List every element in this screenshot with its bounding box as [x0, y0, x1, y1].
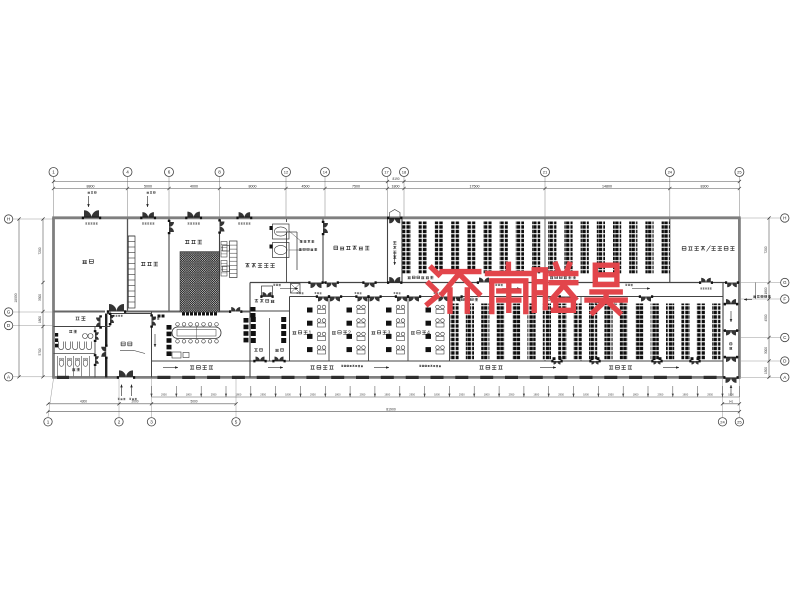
svg-text:17: 17	[384, 170, 389, 175]
svg-text:2: 2	[118, 419, 121, 424]
svg-text:1800: 1800	[384, 393, 390, 397]
svg-text:1800: 1800	[38, 316, 42, 323]
svg-text:24: 24	[720, 419, 725, 424]
svg-text:12: 12	[284, 170, 289, 175]
svg-text:3300: 3300	[38, 294, 42, 301]
svg-text:1800: 1800	[186, 393, 192, 397]
svg-text:21: 21	[543, 170, 548, 175]
svg-text:H: H	[783, 216, 786, 221]
svg-text:14: 14	[323, 170, 328, 175]
svg-text:2950: 2950	[658, 393, 664, 397]
svg-text:6: 6	[168, 170, 171, 175]
svg-text:1800: 1800	[434, 393, 440, 397]
svg-text:25: 25	[737, 419, 742, 424]
svg-text:1: 1	[52, 170, 55, 175]
svg-text:24: 24	[668, 170, 673, 175]
svg-text:4300: 4300	[80, 400, 87, 404]
svg-text:8800: 8800	[87, 184, 95, 188]
svg-text:7200: 7200	[764, 246, 768, 253]
svg-text:2950: 2950	[310, 393, 316, 397]
svg-text:7200: 7200	[38, 247, 42, 254]
svg-text:81900: 81900	[386, 407, 396, 411]
svg-text:2950: 2950	[509, 393, 515, 397]
svg-text:2950: 2950	[360, 393, 366, 397]
svg-text:1800: 1800	[484, 393, 490, 397]
svg-text:5: 5	[235, 419, 238, 424]
svg-text:1: 1	[47, 419, 50, 424]
svg-text:1800: 1800	[335, 393, 341, 397]
svg-text:H: H	[7, 217, 10, 222]
svg-text:2950: 2950	[608, 393, 614, 397]
svg-text:3000: 3000	[764, 347, 768, 354]
svg-text:14800: 14800	[602, 184, 612, 188]
svg-text:25: 25	[737, 170, 742, 175]
svg-text:G: G	[783, 280, 787, 285]
svg-text:942: 942	[729, 400, 734, 404]
svg-text:8190: 8190	[392, 177, 399, 181]
svg-text:18: 18	[402, 170, 407, 175]
svg-text:8000: 8000	[249, 184, 257, 188]
svg-text:3: 3	[388, 331, 391, 337]
svg-text:5700: 5700	[38, 348, 42, 355]
svg-text:2950: 2950	[459, 393, 465, 397]
svg-text:2950: 2950	[260, 393, 266, 397]
svg-text:8: 8	[218, 170, 221, 175]
svg-text:2000: 2000	[131, 400, 138, 404]
svg-text:4500: 4500	[764, 314, 768, 321]
svg-text:5000: 5000	[144, 184, 152, 188]
svg-text:2950: 2950	[161, 393, 167, 397]
svg-text:7500: 7500	[352, 184, 360, 188]
svg-text:F: F	[783, 297, 786, 302]
svg-text:G: G	[7, 310, 11, 315]
svg-text:1800: 1800	[764, 287, 768, 294]
svg-text:4: 4	[427, 331, 430, 337]
svg-text:1800: 1800	[285, 393, 291, 397]
svg-text:1800: 1800	[392, 184, 400, 188]
svg-text:1800: 1800	[633, 393, 639, 397]
svg-text:4500: 4500	[302, 184, 310, 188]
svg-text:5000: 5000	[190, 400, 197, 404]
svg-text:4000: 4000	[190, 184, 198, 188]
svg-text:2950: 2950	[409, 393, 415, 397]
svg-text:2950: 2950	[558, 393, 564, 397]
svg-text:2950: 2950	[707, 393, 713, 397]
svg-text:1800: 1800	[236, 393, 242, 397]
svg-text:2: 2	[348, 331, 351, 337]
svg-text:17500: 17500	[470, 184, 480, 188]
svg-text:1800: 1800	[583, 393, 589, 397]
svg-text:8300: 8300	[701, 184, 709, 188]
svg-text:3: 3	[150, 419, 153, 424]
svg-text:18000: 18000	[14, 293, 18, 302]
svg-text:2950: 2950	[211, 393, 217, 397]
svg-text:1800: 1800	[682, 393, 688, 397]
svg-text:1500: 1500	[764, 367, 768, 374]
svg-text:1: 1	[309, 331, 312, 337]
svg-text:4: 4	[126, 170, 129, 175]
svg-text:1800: 1800	[533, 393, 539, 397]
